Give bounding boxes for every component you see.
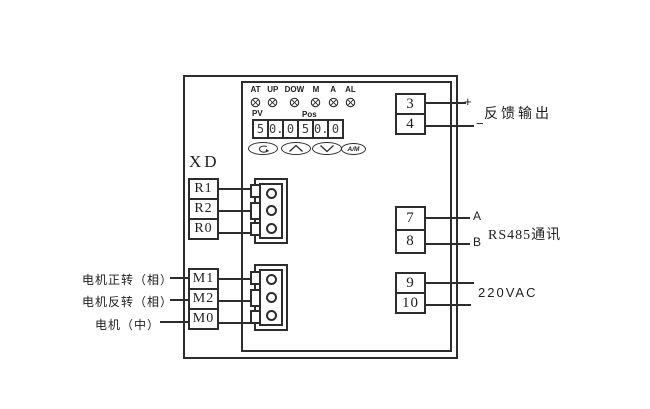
indicator-label: A [330, 85, 336, 94]
m-connector-face [259, 269, 283, 326]
terminal-9: 9 [395, 272, 426, 294]
indicator-m: M [310, 85, 321, 108]
wiring-diagram: AT UP DOW M A AL PV Pos 5 0. 0 5 0. [0, 0, 650, 409]
rs485-a-label: A [473, 209, 481, 223]
terminal-4: 4 [395, 113, 426, 135]
wire-power-l [424, 282, 474, 284]
label-motor-neutral: 电机（中） [82, 316, 160, 333]
terminal-7: 7 [395, 206, 426, 231]
label-motor-reverse: 电机反转（相） [82, 293, 170, 310]
wire-rs485-b [424, 243, 470, 245]
wire-rs485-a [424, 217, 470, 219]
r-connector-block [254, 178, 288, 244]
indicator-a: A [328, 85, 339, 108]
screw-terminal-icon [266, 274, 277, 285]
indicator-lamp-icon [310, 97, 321, 108]
polarity-minus: − [476, 116, 484, 131]
indicator-al: AL [345, 85, 356, 108]
polarity-plus: + [464, 94, 472, 109]
down-button [312, 142, 342, 155]
indicator-lamp-icon [328, 97, 339, 108]
wire-feedback-minus [424, 125, 474, 127]
display-digit: 0. [312, 121, 327, 137]
indicator-row: AT UP DOW M A AL [250, 85, 356, 108]
indicator-up: UP [267, 85, 278, 108]
auto-manual-label: A/M [348, 146, 360, 153]
lead-motor-neutral [160, 321, 189, 323]
digital-display: 5 0. 0 5 0. 0 [252, 119, 344, 139]
indicator-label: UP [267, 85, 278, 94]
indicator-label: AT [250, 85, 260, 94]
screw-terminal-icon [266, 292, 277, 303]
terminal-r1: R1 [188, 178, 219, 200]
indicator-lamp-icon [289, 97, 300, 108]
wire-feedback-plus [424, 102, 466, 104]
up-button [281, 142, 311, 155]
screw-terminal-icon [266, 205, 277, 216]
indicator-lamp-icon [267, 97, 278, 108]
set-button [248, 142, 278, 155]
indicator-lamp-icon [250, 97, 261, 108]
rs485-terminal-pair: 7 8 [395, 206, 426, 254]
indicator-label: AL [345, 85, 356, 94]
display-digit: 0 [282, 121, 297, 137]
display-digit: 5 [297, 121, 312, 137]
terminal-m0: M0 [188, 308, 219, 330]
pv-label: PV [252, 109, 263, 118]
indicator-lamp-icon [345, 97, 356, 108]
up-arrow-icon [287, 144, 305, 153]
terminal-8: 8 [395, 229, 426, 254]
terminal-m2: M2 [188, 288, 219, 310]
xd-label: XD [189, 152, 220, 172]
terminal-10: 10 [395, 292, 426, 314]
m-terminal-stack: M1 M2 M0 [188, 268, 219, 330]
indicator-dow: DOW [285, 85, 305, 108]
auto-manual-button: A/M [341, 143, 366, 155]
display-digit: 0. [267, 121, 282, 137]
feedback-terminal-pair: 3 4 [395, 93, 426, 135]
loop-arrow-icon [254, 144, 272, 154]
screw-terminal-icon [266, 310, 277, 321]
indicator-at: AT [250, 85, 261, 108]
m-connector-block [254, 264, 288, 331]
caption-rs485: RS485通讯 [488, 224, 561, 244]
screw-terminal-icon [266, 223, 277, 234]
terminal-m1: M1 [188, 268, 219, 290]
power-terminal-pair: 9 10 [395, 272, 426, 314]
label-motor-forward: 电机正转（相） [82, 271, 170, 288]
rs485-b-label: B [473, 235, 481, 249]
display-digit: 5 [254, 121, 267, 137]
r-terminal-stack: R1 R2 R0 [188, 178, 219, 240]
screw-terminal-icon [266, 188, 277, 199]
display-digit: 0 [327, 121, 342, 137]
caption-feedback-output: 反馈输出 [484, 103, 552, 123]
indicator-label: DOW [285, 85, 305, 94]
r-connector-face [259, 183, 283, 239]
caption-220vac: 220VAC [478, 285, 537, 300]
pos-label: Pos [302, 110, 317, 119]
terminal-3: 3 [395, 93, 426, 115]
terminal-r2: R2 [188, 198, 219, 220]
indicator-label: M [313, 85, 320, 94]
wire-power-n [424, 304, 471, 306]
terminal-r0: R0 [188, 218, 219, 240]
down-arrow-icon [318, 144, 336, 153]
